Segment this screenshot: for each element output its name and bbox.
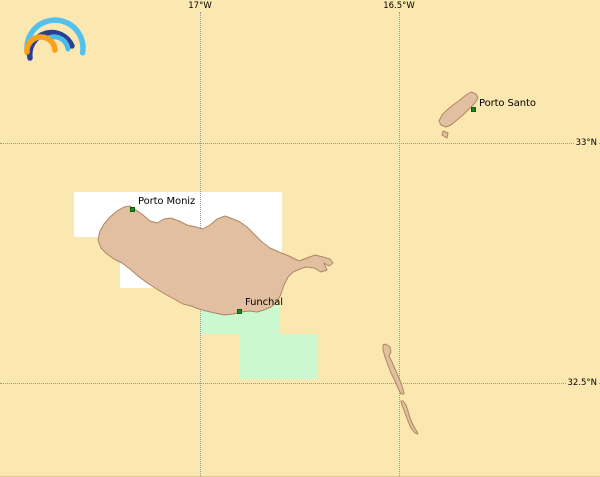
rainbow-logo[interactable] — [0, 0, 95, 70]
map-canvas: 17°W16.5°W33°N32.5°NPorto MonizFunchalPo… — [0, 0, 600, 477]
bugio-island — [401, 401, 418, 434]
madeira-island — [98, 206, 333, 315]
parallel-label: 33°N — [575, 138, 598, 148]
porto-santo-islet — [442, 131, 448, 138]
parallel-label: 32.5°N — [566, 378, 598, 388]
place-label: Porto Moniz — [138, 196, 195, 207]
islands-layer — [0, 0, 600, 476]
place-label: Funchal — [245, 297, 283, 308]
deserta-grande-island — [383, 344, 404, 394]
place-marker — [131, 208, 134, 211]
place-marker — [472, 108, 475, 111]
meridian-label: 17°W — [188, 1, 211, 11]
place-marker — [238, 310, 241, 313]
place-label: Porto Santo — [479, 98, 536, 109]
meridian-label: 16.5°W — [383, 1, 415, 11]
